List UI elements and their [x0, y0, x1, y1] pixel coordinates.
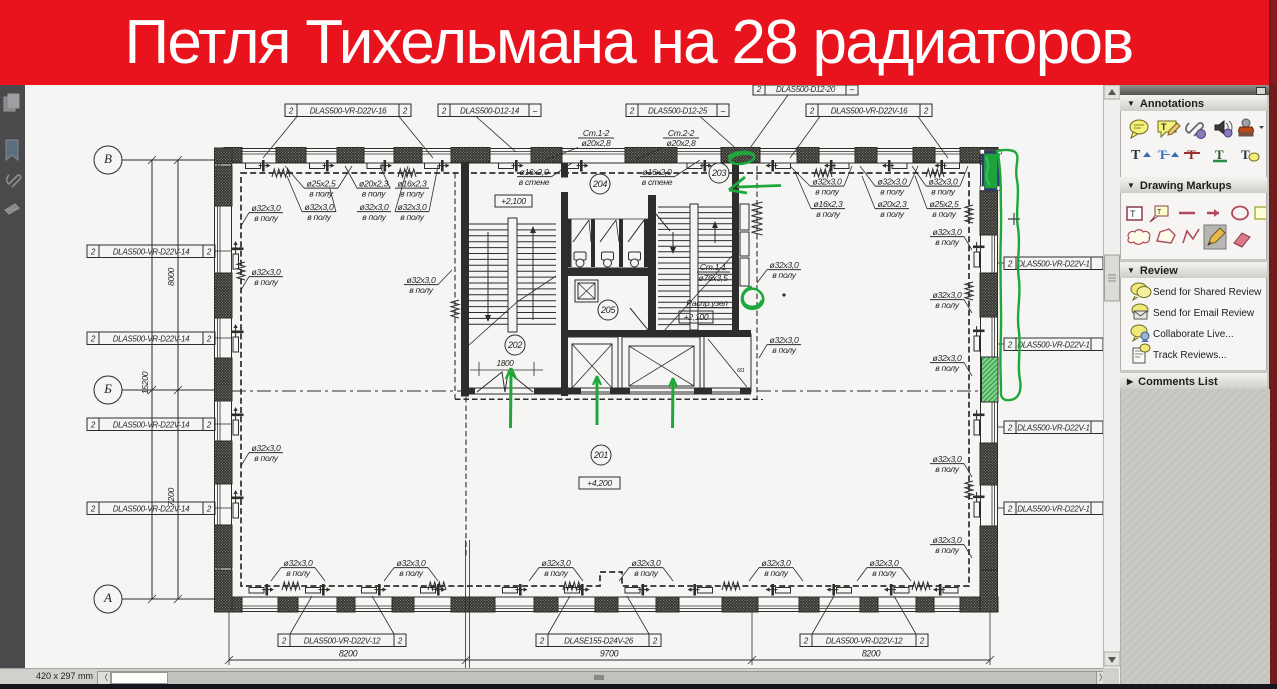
svg-text:2: 2	[90, 247, 96, 256]
svg-text:ø32x3,0: ø32x3,0	[870, 558, 899, 568]
svg-text:DLAS500-VR-D22V-1: DLAS500-VR-D22V-1	[1017, 504, 1089, 513]
svg-text:ø32x3,0: ø32x3,0	[407, 275, 436, 285]
svg-text:T: T	[1187, 147, 1196, 162]
svg-text:2: 2	[288, 106, 294, 115]
svg-text:ø20x2,3: ø20x2,3	[359, 179, 388, 189]
svg-text:9700: 9700	[600, 649, 619, 659]
svg-text:в полу: в полу	[254, 453, 278, 463]
svg-text:T̶: T̶	[1158, 147, 1171, 162]
svg-text:DLAS500-VR-D22V-1: DLAS500-VR-D22V-1	[1017, 340, 1089, 349]
svg-text:2: 2	[803, 636, 809, 645]
svg-text:ø32x3,0: ø32x3,0	[252, 267, 281, 277]
svg-text:201: 201	[593, 450, 608, 460]
svg-text:ø32x3,0: ø32x3,0	[284, 558, 313, 568]
svg-text:в полу: в полу	[307, 212, 331, 222]
svg-text:2: 2	[402, 106, 408, 115]
svg-text:в полу: в полу	[399, 568, 423, 578]
svg-text:DLAS500-VR-D22V-12: DLAS500-VR-D22V-12	[304, 636, 381, 645]
svg-text:DLASE155-D24V-26: DLASE155-D24V-26	[564, 636, 634, 645]
svg-text:в полу: в полу	[816, 209, 840, 219]
svg-text:2: 2	[923, 106, 929, 115]
svg-text:в полу: в полу	[880, 187, 904, 197]
svg-text:ø32x3,0: ø32x3,0	[252, 443, 281, 453]
svg-text:в полу: в полу	[772, 345, 796, 355]
svg-text:ø32x3,0: ø32x3,0	[252, 203, 281, 213]
svg-text:2: 2	[539, 636, 545, 645]
svg-text:2: 2	[1007, 504, 1013, 513]
svg-text:DLAS500-VR-D22V-1: DLAS500-VR-D22V-1	[1017, 259, 1089, 268]
svg-text:+4,200: +4,200	[587, 478, 612, 488]
svg-text:в полу: в полу	[772, 270, 796, 280]
svg-text:ø32x3,0: ø32x3,0	[632, 558, 661, 568]
svg-text:2: 2	[919, 636, 925, 645]
svg-text:ø16x2,3: ø16x2,3	[814, 199, 843, 209]
svg-text:–: –	[720, 106, 726, 115]
svg-text:DLAS500-D12-14: DLAS500-D12-14	[460, 106, 520, 115]
svg-text:в полу: в полу	[400, 189, 424, 199]
svg-text:ø25x2,5: ø25x2,5	[307, 179, 336, 189]
svg-text:в полу: в полу	[815, 187, 839, 197]
svg-text:В: В	[104, 151, 112, 166]
svg-text:–: –	[532, 106, 538, 115]
svg-text:Ст.1-1: Ст.1-1	[700, 262, 727, 272]
svg-text:Б: Б	[103, 381, 112, 396]
svg-text:ø76x3,5: ø76x3,5	[699, 273, 728, 283]
svg-text:ø32x3,0: ø32x3,0	[770, 335, 799, 345]
svg-text:2: 2	[206, 334, 212, 343]
svg-text:Распр.узел: Распр.узел	[686, 298, 728, 308]
svg-text:в полу: в полу	[254, 213, 278, 223]
svg-text:2: 2	[809, 106, 815, 115]
svg-text:в полу: в полу	[409, 285, 433, 295]
svg-text:DLAS500-VR-D22V-16: DLAS500-VR-D22V-16	[310, 106, 387, 115]
svg-text:DLAS500-VR-D22V-14: DLAS500-VR-D22V-14	[113, 420, 190, 429]
svg-text:202: 202	[507, 340, 522, 350]
svg-text:601: 601	[737, 368, 745, 374]
svg-text:ø32x3,0: ø32x3,0	[770, 260, 799, 270]
svg-text:DLAS500-D12-20: DLAS500-D12-20	[776, 85, 836, 94]
svg-text:8000: 8000	[166, 268, 176, 286]
svg-text:2: 2	[206, 504, 212, 513]
svg-text:в стене: в стене	[642, 177, 673, 187]
svg-text:ø16x2,0: ø16x2,0	[520, 167, 549, 177]
svg-text:в полу: в полу	[544, 568, 568, 578]
svg-text:ø32x3,0: ø32x3,0	[933, 227, 962, 237]
svg-text:203: 203	[711, 168, 726, 178]
svg-text:8200: 8200	[339, 649, 358, 659]
svg-text:204: 204	[592, 179, 607, 189]
svg-text:ø32x3,0: ø32x3,0	[878, 177, 907, 187]
svg-text:2: 2	[441, 106, 447, 115]
svg-text:Ст.1-2: Ст.1-2	[583, 128, 610, 138]
svg-text:2: 2	[90, 334, 96, 343]
svg-text:ø32x3,0: ø32x3,0	[933, 353, 962, 363]
svg-text:–: –	[849, 85, 855, 94]
svg-text:7200: 7200	[166, 488, 176, 506]
svg-text:ø20x2,3: ø20x2,3	[878, 199, 907, 209]
svg-text:ø25x2,5: ø25x2,5	[930, 199, 959, 209]
svg-text:ø16x2,0: ø16x2,0	[643, 167, 672, 177]
svg-text:Ст.2-2: Ст.2-2	[668, 128, 695, 138]
svg-text:в полу: в полу	[935, 363, 959, 373]
svg-text:ø20x2,8: ø20x2,8	[667, 138, 696, 148]
svg-text:DLAS500-VR-D22V-16: DLAS500-VR-D22V-16	[831, 106, 908, 115]
svg-text:DLAS500-VR-D22V-14: DLAS500-VR-D22V-14	[113, 504, 190, 513]
svg-text:в полу: в полу	[935, 545, 959, 555]
svg-text:T: T	[1131, 148, 1141, 163]
svg-text:в полу: в полу	[634, 568, 658, 578]
svg-text:T: T	[1241, 147, 1250, 162]
svg-text:DLAS500-D12-25: DLAS500-D12-25	[648, 106, 708, 115]
svg-text:8200: 8200	[862, 649, 881, 659]
svg-text:в полу: в полу	[935, 237, 959, 247]
svg-text:2: 2	[756, 85, 762, 94]
svg-text:в полу: в полу	[935, 300, 959, 310]
svg-text:в полу: в полу	[764, 568, 788, 578]
svg-text:ø32x3,0: ø32x3,0	[397, 558, 426, 568]
svg-text:ø32x3,0: ø32x3,0	[542, 558, 571, 568]
svg-text:2: 2	[1007, 340, 1013, 349]
svg-text:в полу: в полу	[932, 209, 956, 219]
svg-text:в полу: в полу	[286, 568, 310, 578]
svg-text:в полу: в полу	[880, 209, 904, 219]
svg-text:в полу: в полу	[935, 464, 959, 474]
svg-text:DLAS500-VR-D22V-12: DLAS500-VR-D22V-12	[826, 636, 903, 645]
svg-text:ø32x3,0: ø32x3,0	[360, 202, 389, 212]
svg-text:в стене: в стене	[519, 177, 550, 187]
svg-text:2: 2	[90, 504, 96, 513]
svg-text:T: T	[1157, 209, 1162, 216]
svg-text:2: 2	[1007, 259, 1013, 268]
svg-text:ø32x3,0: ø32x3,0	[398, 202, 427, 212]
svg-text:+2,100: +2,100	[501, 196, 526, 206]
svg-text:ø32x3,0: ø32x3,0	[762, 558, 791, 568]
svg-text:2: 2	[206, 247, 212, 256]
svg-text:2: 2	[281, 636, 287, 645]
svg-text:в полу: в полу	[872, 568, 896, 578]
svg-text:ø32x3,0: ø32x3,0	[933, 290, 962, 300]
svg-text:205: 205	[600, 305, 616, 315]
svg-text:2: 2	[90, 420, 96, 429]
svg-text:ø32x3,0: ø32x3,0	[933, 454, 962, 464]
svg-text:ø32x3,0: ø32x3,0	[813, 177, 842, 187]
svg-text:+2,100: +2,100	[684, 312, 709, 322]
svg-text:15200: 15200	[140, 371, 150, 394]
svg-text:2: 2	[206, 420, 212, 429]
svg-text:2: 2	[652, 636, 658, 645]
svg-text:в полу: в полу	[254, 277, 278, 287]
svg-text:в полу: в полу	[931, 187, 955, 197]
svg-text:в полу: в полу	[400, 212, 424, 222]
svg-text:T: T	[1161, 122, 1167, 132]
svg-text:DLAS500-VR-D22V-14: DLAS500-VR-D22V-14	[113, 247, 190, 256]
svg-text:в полу: в полу	[362, 212, 386, 222]
svg-text:1800: 1800	[496, 359, 514, 368]
svg-text:ø32x3,0: ø32x3,0	[929, 177, 958, 187]
svg-text:2: 2	[629, 106, 635, 115]
svg-text:2: 2	[397, 636, 403, 645]
svg-text:А: А	[103, 590, 112, 605]
svg-text:DLAS500-VR-D22V-14: DLAS500-VR-D22V-14	[113, 334, 190, 343]
svg-text:ø32x3,0: ø32x3,0	[305, 202, 334, 212]
svg-text:DLAS500-VR-D22V-1: DLAS500-VR-D22V-1	[1017, 423, 1089, 432]
svg-text:T: T	[1130, 209, 1136, 219]
svg-text:ø20x2,8: ø20x2,8	[582, 138, 611, 148]
svg-text:ø32x3,0: ø32x3,0	[933, 535, 962, 545]
svg-text:2: 2	[1007, 423, 1013, 432]
svg-text:в полу: в полу	[362, 189, 386, 199]
